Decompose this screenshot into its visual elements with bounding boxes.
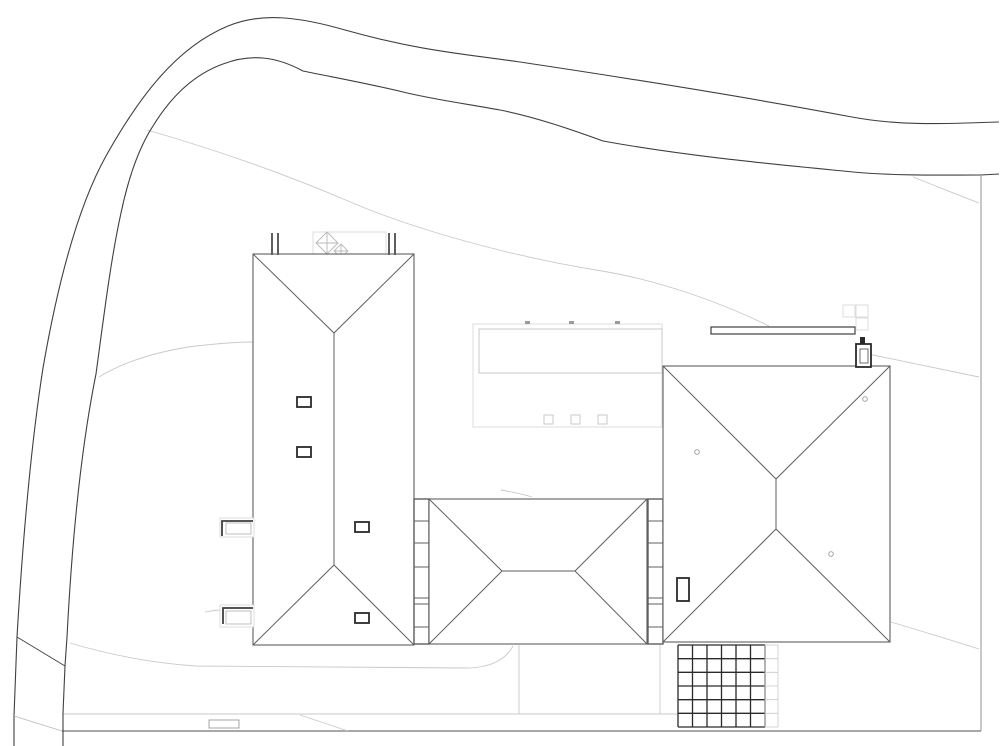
roof-window-a4	[355, 613, 369, 623]
driveway-edge	[70, 643, 513, 668]
site-plan-page	[0, 0, 1000, 746]
contour-right-bottom	[891, 622, 979, 649]
road-spur-upper	[17, 637, 65, 666]
paths-and-driveway	[62, 643, 981, 731]
court-skylight-1	[544, 415, 553, 424]
flue-box	[856, 344, 871, 367]
chimney-flue-a3	[388, 233, 390, 255]
court-skylight-2	[571, 415, 580, 424]
court-tick-2	[569, 321, 574, 324]
paving-square-1	[843, 305, 855, 317]
garden-wall-bar	[711, 327, 855, 334]
chimney-c	[677, 578, 689, 601]
garden-wall	[711, 305, 868, 334]
roof-window-a3	[355, 522, 369, 532]
paving-square-3	[856, 318, 868, 330]
building-b-link-wing	[414, 499, 663, 644]
court-tick-1	[525, 321, 530, 324]
roof-vent-c1	[695, 450, 700, 455]
pergola	[678, 645, 778, 727]
contour-fragment-c	[501, 490, 532, 497]
chimney-flue-a1	[271, 233, 273, 255]
roof-window-a1	[297, 397, 311, 407]
pergola-grid	[678, 645, 765, 727]
roof-vent-c2	[863, 397, 868, 402]
contour-upper	[147, 130, 769, 326]
chimney-flue-a2	[277, 233, 279, 255]
walk-inset-marker	[209, 720, 239, 728]
court-tick-3	[615, 321, 620, 324]
contour-left	[99, 342, 253, 377]
paving-square-2	[856, 305, 868, 317]
court-skylight-3	[598, 415, 607, 424]
pergola-extension	[765, 645, 778, 727]
building-a-west-wing	[253, 233, 414, 645]
contour-right-top	[913, 177, 979, 203]
flat-roof-court	[473, 321, 662, 427]
site-plan-svg	[0, 0, 1000, 746]
contour-fragment-a	[205, 610, 221, 612]
walk-ramp-diagonal	[300, 715, 348, 731]
chimney-flue-a4	[394, 233, 396, 255]
road-spur-lower	[14, 716, 62, 731]
roof-vent-c3	[829, 552, 834, 557]
flue-cap	[860, 337, 865, 344]
roof-window-a2	[297, 447, 311, 457]
flat-roof-inner-panel	[479, 329, 662, 373]
building-c-east-wing	[663, 337, 890, 642]
light-wells	[220, 518, 254, 627]
